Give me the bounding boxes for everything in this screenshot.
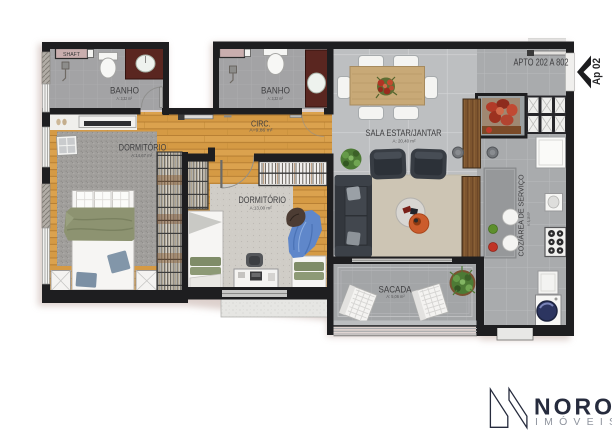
- svg-text:APTO 202 A 802: APTO 202 A 802: [514, 58, 569, 69]
- svg-text:SALA ESTAR/JANTAR: SALA ESTAR/JANTAR: [366, 128, 442, 138]
- svg-text:IMÓVEIS: IMÓVEIS: [535, 415, 612, 428]
- svg-text:SHAFT: SHAFT: [63, 52, 80, 58]
- svg-text:A:14,67 m²: A:14,67 m²: [131, 153, 152, 158]
- svg-text:A: 5,06 m²: A: 5,06 m²: [386, 294, 405, 299]
- svg-text:A=9,86 m²: A=9,86 m²: [249, 128, 273, 133]
- svg-text:Ap 02: Ap 02: [591, 58, 603, 85]
- svg-text:A: 3,32 m²: A: 3,32 m²: [117, 96, 133, 101]
- svg-text:BANHO: BANHO: [110, 86, 139, 97]
- svg-text:A:13,00 m²: A:13,00 m²: [250, 206, 272, 211]
- svg-text:COZ/ÁREA DE SERVIÇO: COZ/ÁREA DE SERVIÇO: [517, 174, 526, 256]
- svg-text:DORMITÓRIO: DORMITÓRIO: [119, 142, 167, 152]
- svg-text:BANHO: BANHO: [261, 86, 290, 97]
- svg-text:A: 3,32 m²: A: 3,32 m²: [268, 96, 284, 101]
- svg-text:DORMITÓRIO: DORMITÓRIO: [239, 195, 287, 205]
- svg-text:A: 5,19 m²: A: 5,19 m²: [526, 212, 531, 226]
- svg-text:A: 20,40 m²: A: 20,40 m²: [393, 139, 416, 144]
